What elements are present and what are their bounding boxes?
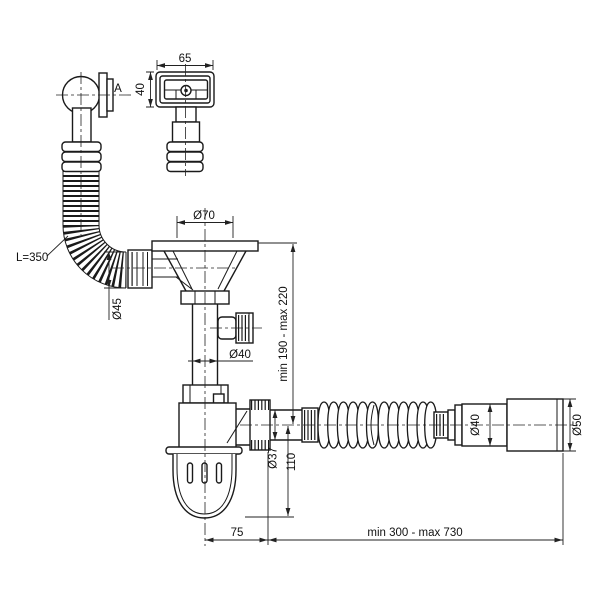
center-lines — [56, 64, 578, 546]
overflow-faceplate-part — [156, 72, 214, 172]
overflow-hose — [63, 170, 126, 288]
hose-nut-diameter-label: Ø45 — [112, 298, 124, 320]
flexible-length-range-label: min 300 - max 730 — [367, 527, 462, 539]
trap-depth-label: 110 — [286, 453, 298, 471]
plate-screw-dot — [184, 89, 188, 93]
overflow-elbow-part — [62, 73, 113, 172]
technical-drawing-canvas: 65 40 A L=350 Ø70 Ø45 min 190 - max 220 … — [0, 0, 600, 600]
overflow-view-label: A — [114, 83, 122, 95]
dim-trap-offset: 75 min 300 - max 730 — [205, 452, 563, 545]
dim-tailpipe-diameter: Ø40 — [188, 349, 253, 361]
overflow-hose-nut — [128, 250, 178, 288]
funnel-diameter-label: Ø70 — [193, 210, 215, 222]
inlet-height-range-label: min 190 - max 220 — [278, 286, 290, 381]
plate-height-label: 40 — [135, 83, 147, 96]
outlet-pipe-diameter-label: Ø40 — [470, 414, 482, 436]
plate-width-label: 65 — [179, 53, 192, 65]
trap-outlet-diameter-label: Ø37 — [268, 447, 280, 469]
dim-inlet-height-range: min 190 - max 220 — [258, 243, 297, 424]
dim-hose-length: L=350 — [16, 236, 68, 264]
section-a-label: A — [114, 83, 122, 95]
siphon-technical-drawing: 65 40 A L=350 Ø70 Ø45 min 190 - max 220 … — [0, 0, 600, 600]
outlet-sleeve-diameter-label: Ø50 — [572, 414, 584, 436]
trap-offset-label: 75 — [231, 527, 244, 539]
dim-plate-width: 65 — [157, 53, 213, 70]
hose-length-label: L=350 — [16, 252, 48, 264]
tailpipe-diameter-label: Ø40 — [229, 349, 251, 361]
bottle-trap — [166, 385, 250, 518]
